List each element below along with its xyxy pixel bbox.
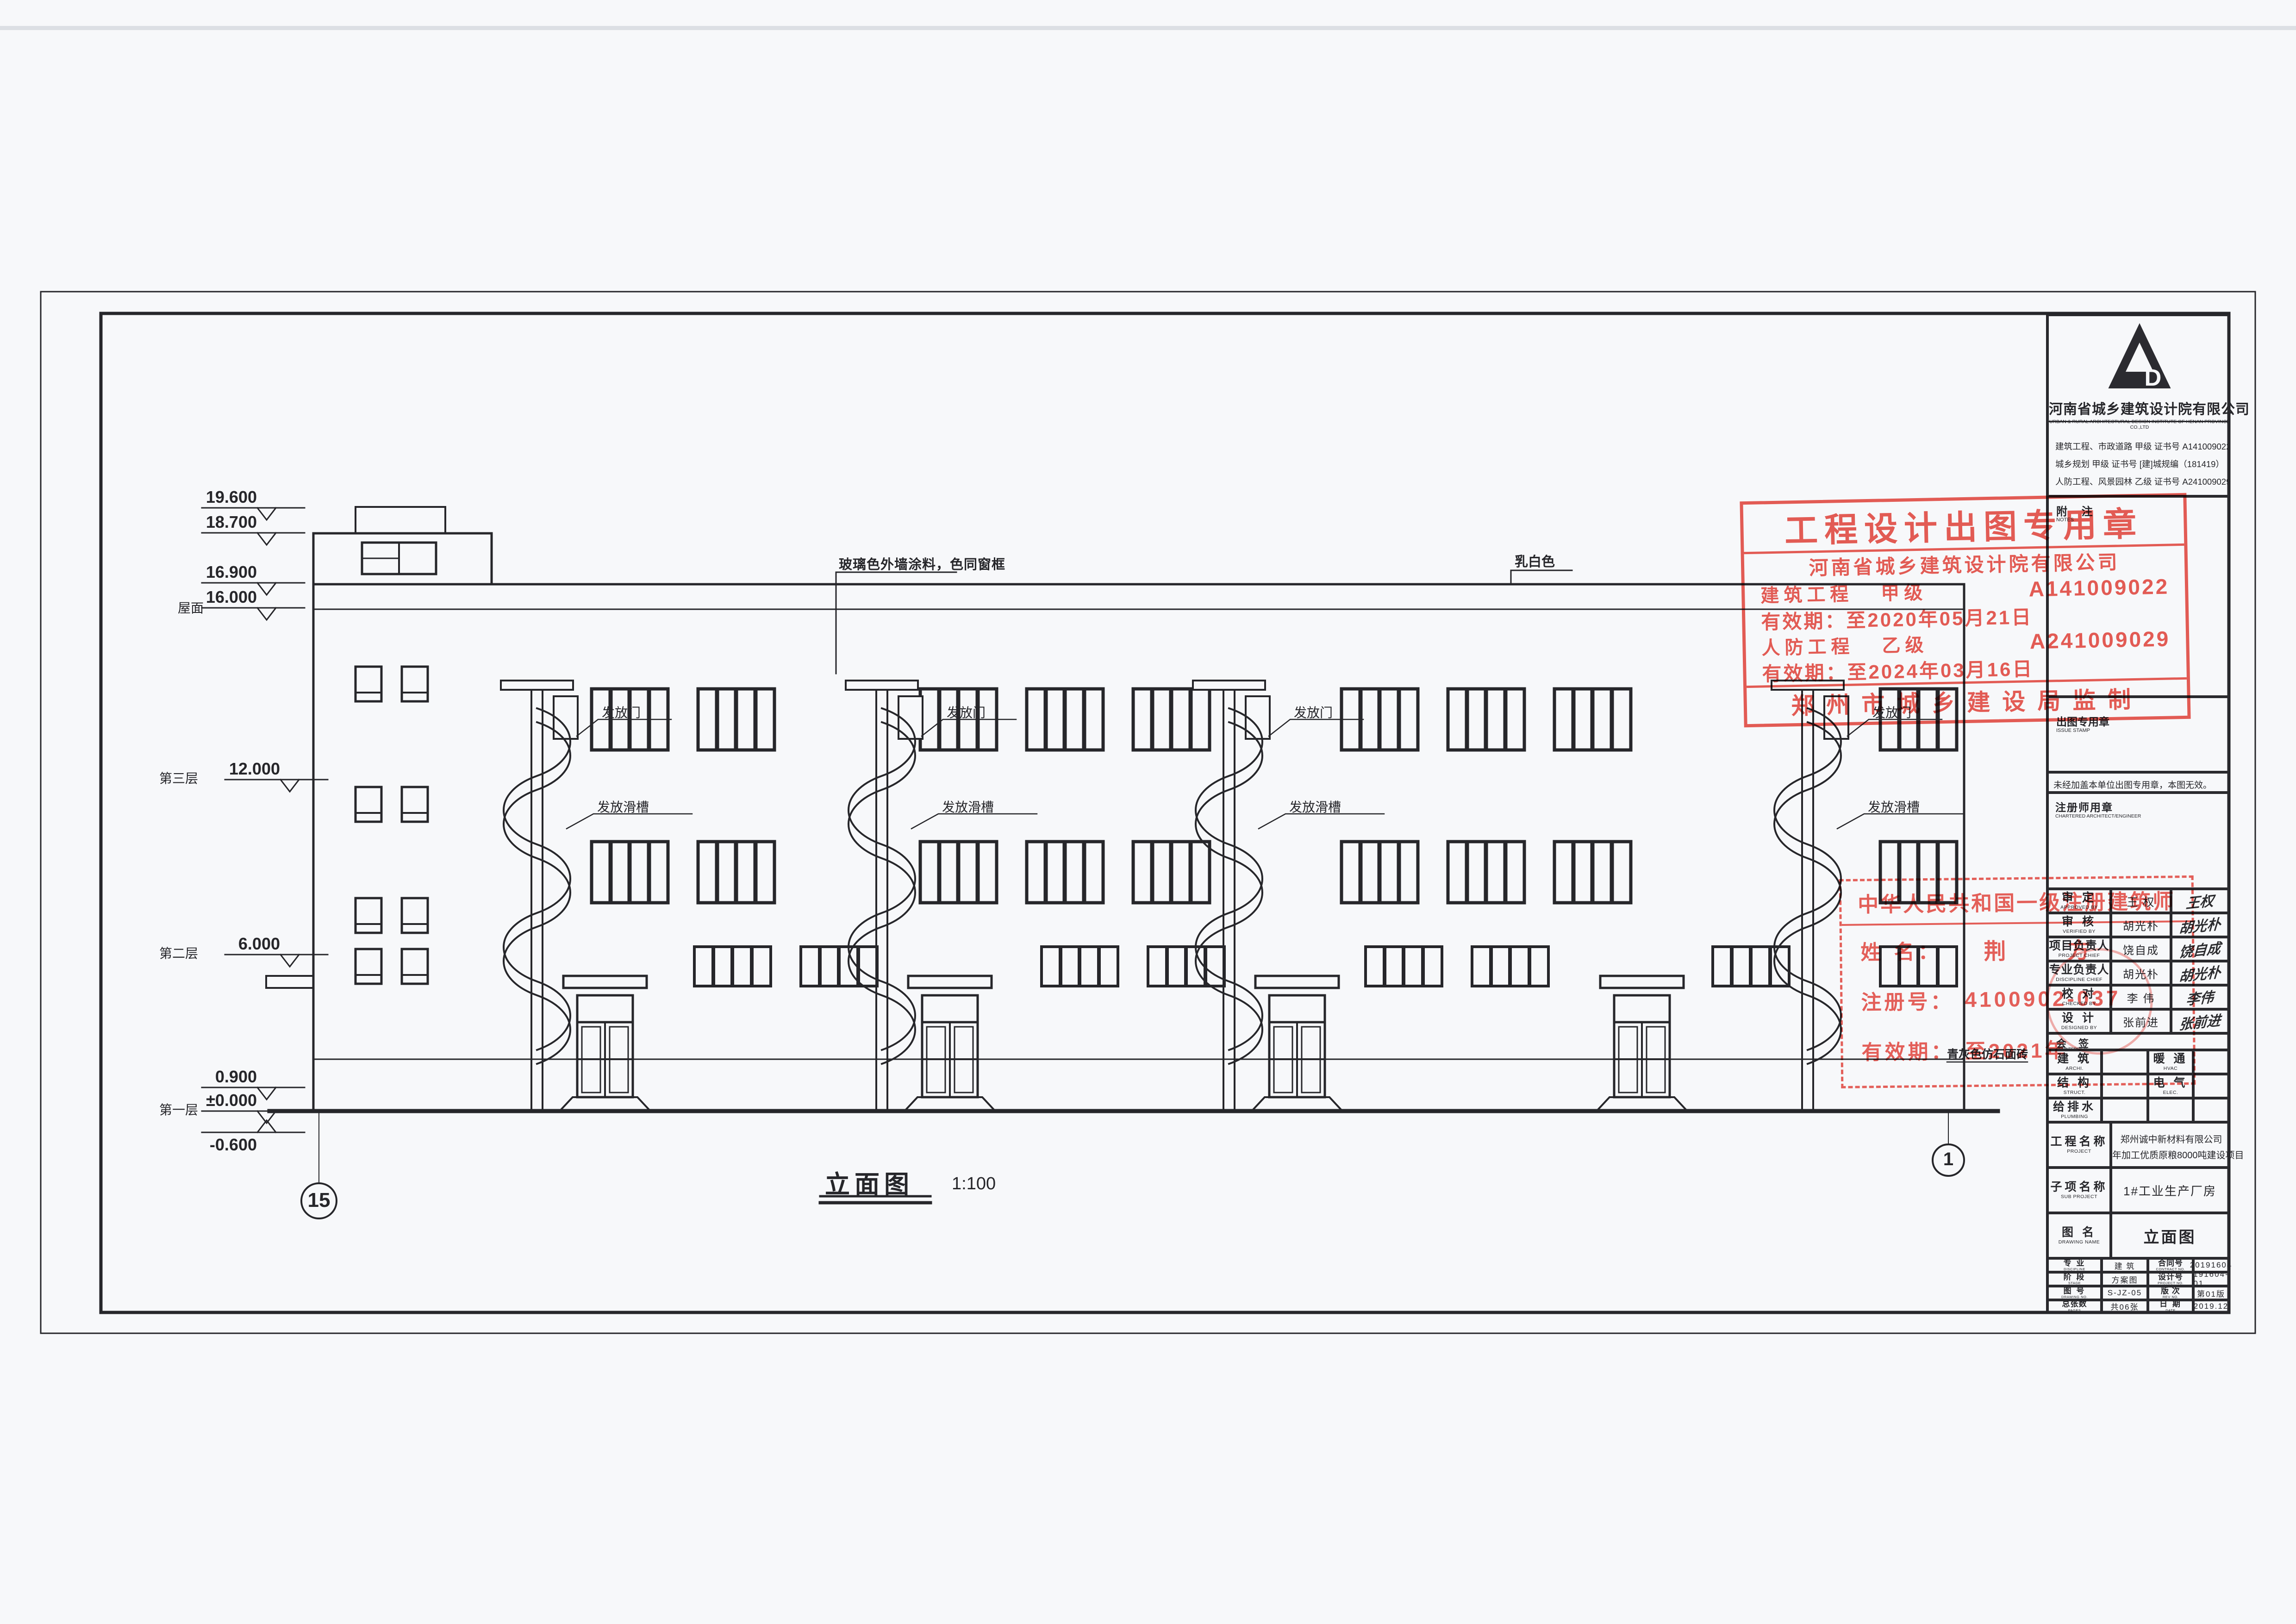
project-value-cell: 郑州诚中新材料有限公司 年加工优质原粮8000吨建设项目: [2111, 1122, 2229, 1168]
meta-label: 总张数: [2062, 1300, 2087, 1308]
issue-stamp-grade: 甲级: [1881, 578, 1928, 606]
architect-stamp-title: 中华人民共和国一级注册建筑师: [1858, 884, 2176, 918]
label-chute-door: 发放门: [602, 703, 641, 721]
disc-value: [2193, 1074, 2229, 1098]
meta-value: 2019.12: [2193, 1300, 2229, 1312]
project-label-cell: 工程名称PROJECT: [2047, 1122, 2111, 1168]
meta-label-en: DRAWING NO.: [2061, 1295, 2088, 1299]
architect-valid-label: 有效期：: [1861, 1035, 1954, 1065]
tower-cap: [356, 507, 445, 533]
meta-value-text: 方案图: [2103, 1274, 2146, 1285]
drawing-scale: 1:100: [952, 1174, 996, 1194]
meta-value: 第01版: [2193, 1286, 2229, 1300]
architect-valid-date: 至2021年: [1965, 1034, 2068, 1064]
company-cert-3: 人防工程、风景园林 乙级 证书号 A241009029: [2055, 475, 2231, 487]
floor-label-3f: 第三层: [159, 768, 198, 787]
axis-grid: [301, 1111, 1964, 1218]
label-chute: 发放滑槽: [1289, 797, 1341, 816]
project-value-line2: 年加工优质原粮8000吨建设项目: [2112, 1148, 2230, 1161]
titleblock-validity-strip: 未经加盖本单位出图专用章，本图无效。: [2047, 772, 2229, 793]
meta-label-en: STAGE: [2068, 1281, 2081, 1285]
meta-cell: 总张数PAGES: [2047, 1300, 2102, 1312]
disc-label-en: STRUCT.: [2064, 1090, 2086, 1095]
meta-value-text: 第01版: [2195, 1287, 2227, 1299]
drawing-title: 立面图: [825, 1164, 914, 1200]
elevation-value: 16.000: [162, 587, 257, 607]
meta-label: 阶 段: [2064, 1273, 2086, 1281]
elevation-value: 0.900: [162, 1067, 257, 1087]
floor-label-2f: 第二层: [159, 943, 198, 962]
meta-value-text: 2019.12: [2195, 1301, 2227, 1311]
meta-cell: 专 业DISCIPLINE: [2047, 1258, 2102, 1272]
drawingname-label-en: DRAWING NAME: [2059, 1239, 2100, 1245]
meta-label: 专 业: [2064, 1259, 2086, 1268]
meta-label-en: CONTRACT NO.: [2156, 1267, 2185, 1271]
meta-value: 方案图: [2102, 1272, 2148, 1286]
disc-label: 给排水: [2053, 1101, 2096, 1113]
titleblock-chartered-cell: 注册师用章 CHARTERED ARCHITECT/ENGINEER: [2047, 793, 2229, 889]
disc-value: [2148, 1098, 2193, 1122]
company-cert-1: 建筑工程、市政道路 甲级 证书号 A141009022: [2055, 440, 2231, 452]
floor-label-1f: 第一层: [159, 1100, 198, 1118]
disc-value: [2193, 1098, 2229, 1122]
meta-label: 日 期: [2159, 1300, 2182, 1308]
meta-value: 建 筑: [2102, 1258, 2148, 1272]
elevation-linework: [0, 0, 2296, 1624]
subproject-label: 子项名称: [2050, 1181, 2108, 1193]
disc-cell: 给排水PLUMBING: [2047, 1098, 2102, 1122]
meta-label: 合同号: [2158, 1259, 2183, 1268]
elevation-value: 6.000: [185, 934, 280, 954]
drawingname-value: 立面图: [2112, 1214, 2227, 1257]
disc-label-en: PLUMBING: [2061, 1114, 2088, 1119]
meta-cell: 设计号PROJECT NO.: [2148, 1272, 2193, 1286]
meta-cell: 合同号CONTRACT NO.: [2148, 1258, 2193, 1272]
issue-seal-stamp: 工程设计出图专用章 河南省城乡建筑设计院有限公司 建筑工程 甲级 A141009…: [1740, 493, 2190, 727]
drawingname-label: 图 名: [2062, 1226, 2096, 1238]
subproject-label-cell: 子项名称SUB PROJECT: [2047, 1168, 2111, 1213]
disc-value: [2193, 1050, 2229, 1074]
issue-stamp-cert-type: 人防工程: [1761, 631, 1854, 660]
meta-value-text: 20191604: [2195, 1260, 2227, 1271]
validity-note: 未经加盖本单位出图专用章，本图无效。: [2053, 778, 2212, 791]
issue-stamp-cert-type: 建筑工程: [1760, 579, 1853, 608]
disc-value: [2102, 1098, 2148, 1122]
drawingname-label-cell: 图 名DRAWING NAME: [2047, 1213, 2111, 1258]
meta-label-en: DATE: [2165, 1308, 2175, 1312]
architect-reg-label: 注册号：: [1861, 985, 1954, 1015]
architect-round-seal: [2046, 948, 2153, 1055]
meta-label: 版 次: [2161, 1287, 2180, 1295]
meta-cell: 日 期DATE: [2148, 1300, 2193, 1312]
titleblock-company-cell: D 河南省城乡建筑设计院有限公司 URBAN & RURAL ARCHITECT…: [2047, 315, 2229, 496]
label-chute-door: 发放门: [947, 703, 986, 721]
meta-cell: 阶 段STAGE: [2047, 1272, 2102, 1286]
meta-label-en: PAGES: [2068, 1308, 2081, 1312]
meta-value-text: 建 筑: [2103, 1260, 2146, 1271]
chartered-label: 注册师用章: [2055, 799, 2113, 814]
elevation-value: 19.600: [162, 487, 257, 507]
meta-label-en: PROJECT NO.: [2158, 1281, 2184, 1285]
project-label-en: PROJECT: [2067, 1149, 2091, 1154]
meta-cell: 图 号DRAWING NO.: [2047, 1286, 2102, 1300]
issue-stamp-grade: 乙级: [1882, 630, 1928, 658]
issue-stamp-title: 工程设计出图专用章: [1784, 496, 2143, 552]
elevation-value: 12.000: [185, 759, 280, 779]
disc-label-en: ELEC.: [2163, 1090, 2178, 1095]
label-chute: 发放滑槽: [942, 797, 994, 816]
left-canopy-slab: [266, 976, 313, 988]
label-chute: 发放滑槽: [597, 797, 649, 816]
meta-value-text: 共06张: [2103, 1301, 2146, 1311]
floor-label-roof: 屋面: [178, 598, 204, 617]
subproject-value: 1#工业生产厂房: [2112, 1169, 2227, 1212]
meta-label-en: DISCIPLINE: [2064, 1267, 2085, 1271]
issue-stamp-cert-no: A241009029: [2029, 626, 2170, 654]
svg-text:D: D: [2145, 364, 2162, 391]
company-cert-2: 城乡规划 甲级 证书号 [建]城规编（181419）: [2055, 458, 2224, 470]
issue-stamp-cert-no: A141009022: [2028, 574, 2169, 602]
label-chute: 发放滑槽: [1868, 797, 1920, 816]
drawing-sheet: 玻璃色外墙涂料，色同窗框 乳白色 青灰色仿石面砖 发放门 发放滑槽 发放门 发放…: [0, 0, 2296, 1624]
company-name-en: URBAN & RURAL ARCHITECTURAL DESIGN INSTI…: [2049, 419, 2230, 430]
chartered-label-en: CHARTERED ARCHITECT/ENGINEER: [2055, 813, 2141, 819]
meta-label-en: REV NO.: [2163, 1295, 2178, 1299]
meta-value-text: S-JZ-05: [2103, 1287, 2146, 1299]
meta-value: 191604-01: [2193, 1272, 2229, 1286]
architect-license-stamp: 中华人民共和国一级注册建筑师 姓 名： 荆 方 注册号： 4100902-037…: [1839, 875, 2196, 1088]
architect-name-label: 姓 名：: [1860, 935, 1942, 966]
issue-stamp-validity: 有效期：至2020年05月21日: [1761, 601, 2033, 635]
meta-value: 共06张: [2102, 1300, 2148, 1312]
axis-bubble-15: 15: [300, 1189, 337, 1212]
issue-stamp-footer: 郑州市城乡建设局监制: [1791, 681, 2143, 721]
stair-tower: [313, 533, 492, 584]
company-logo: D: [2105, 322, 2174, 391]
note-wall-paint: 玻璃色外墙涂料，色同窗框: [839, 554, 1005, 573]
label-chute-door: 发放门: [1294, 703, 1333, 721]
drawingname-value-cell: 立面图: [2111, 1213, 2229, 1258]
subproject-label-en: SUB PROJECT: [2061, 1194, 2097, 1199]
note-parapet-color: 乳白色: [1515, 551, 1555, 570]
subproject-value-cell: 1#工业生产厂房: [2111, 1168, 2229, 1213]
project-label: 工程名称: [2050, 1136, 2108, 1148]
meta-label: 设计号: [2158, 1273, 2183, 1281]
issue-stamp-validity: 有效期：至2024年03月16日: [1762, 653, 2034, 687]
elevation-value: 18.700: [162, 512, 257, 532]
meta-cell: 版 次REV NO.: [2148, 1286, 2193, 1300]
project-value-line1: 郑州诚中新材料有限公司: [2112, 1132, 2230, 1145]
meta-label: 图 号: [2064, 1287, 2086, 1295]
elevation-value: 16.900: [162, 562, 257, 582]
elevation-value: -0.600: [162, 1135, 257, 1155]
meta-value: S-JZ-05: [2102, 1286, 2148, 1300]
axis-bubble-1: 1: [1933, 1149, 1964, 1170]
issue-label-en: ISSUE STAMP: [2056, 728, 2090, 733]
meta-value-text: 191604-01: [2195, 1274, 2227, 1285]
